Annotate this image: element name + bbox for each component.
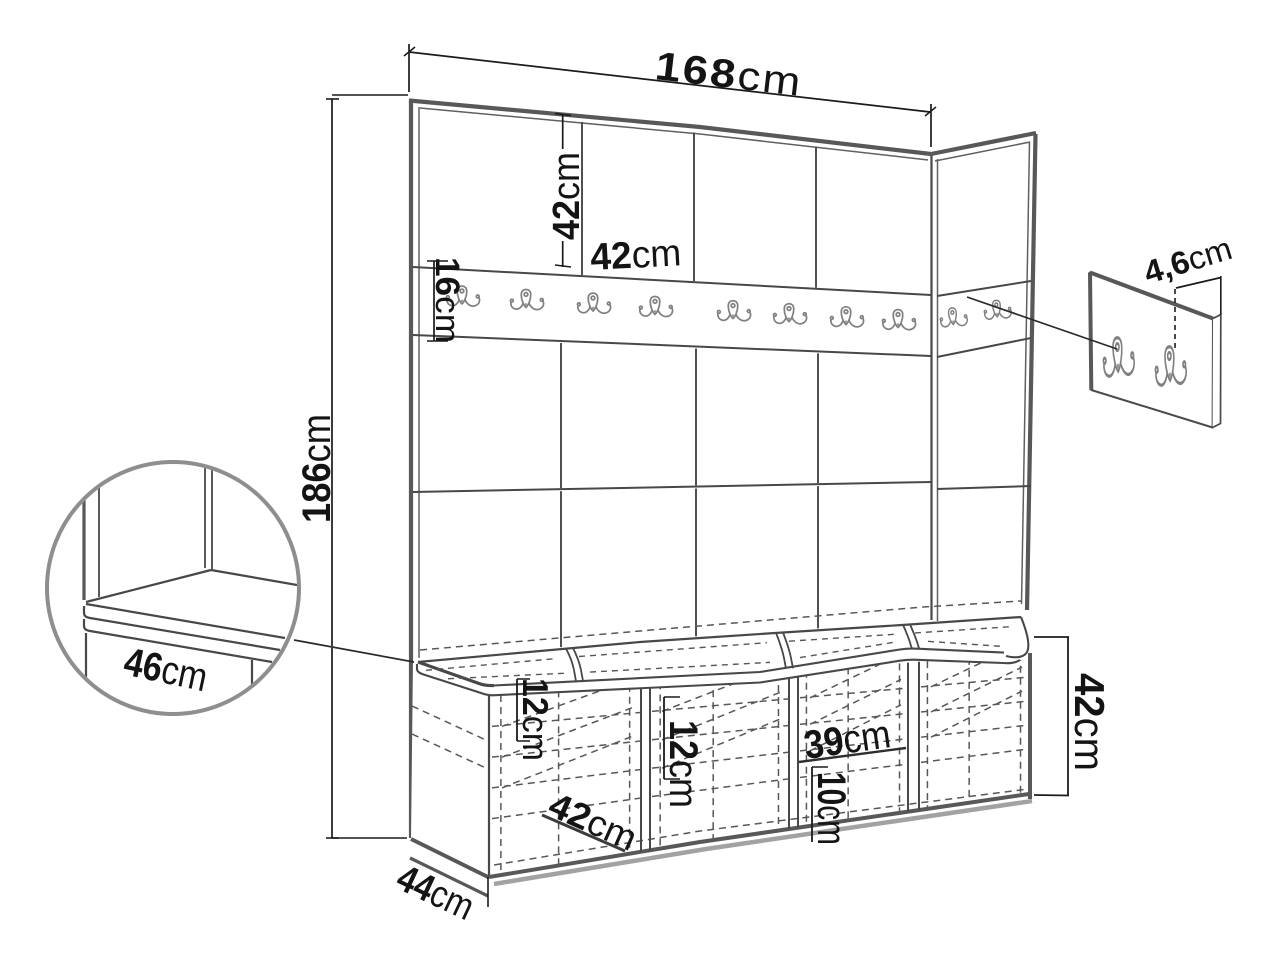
svg-text:42cm: 42cm xyxy=(1066,673,1113,771)
svg-text:12cm: 12cm xyxy=(515,678,556,761)
svg-text:42cm: 42cm xyxy=(546,152,588,240)
svg-text:186cm: 186cm xyxy=(295,414,339,523)
svg-text:16cm: 16cm xyxy=(428,257,466,343)
svg-text:10cm: 10cm xyxy=(809,772,853,845)
svg-text:42cm: 42cm xyxy=(589,232,682,279)
svg-text:12cm: 12cm xyxy=(661,720,705,808)
